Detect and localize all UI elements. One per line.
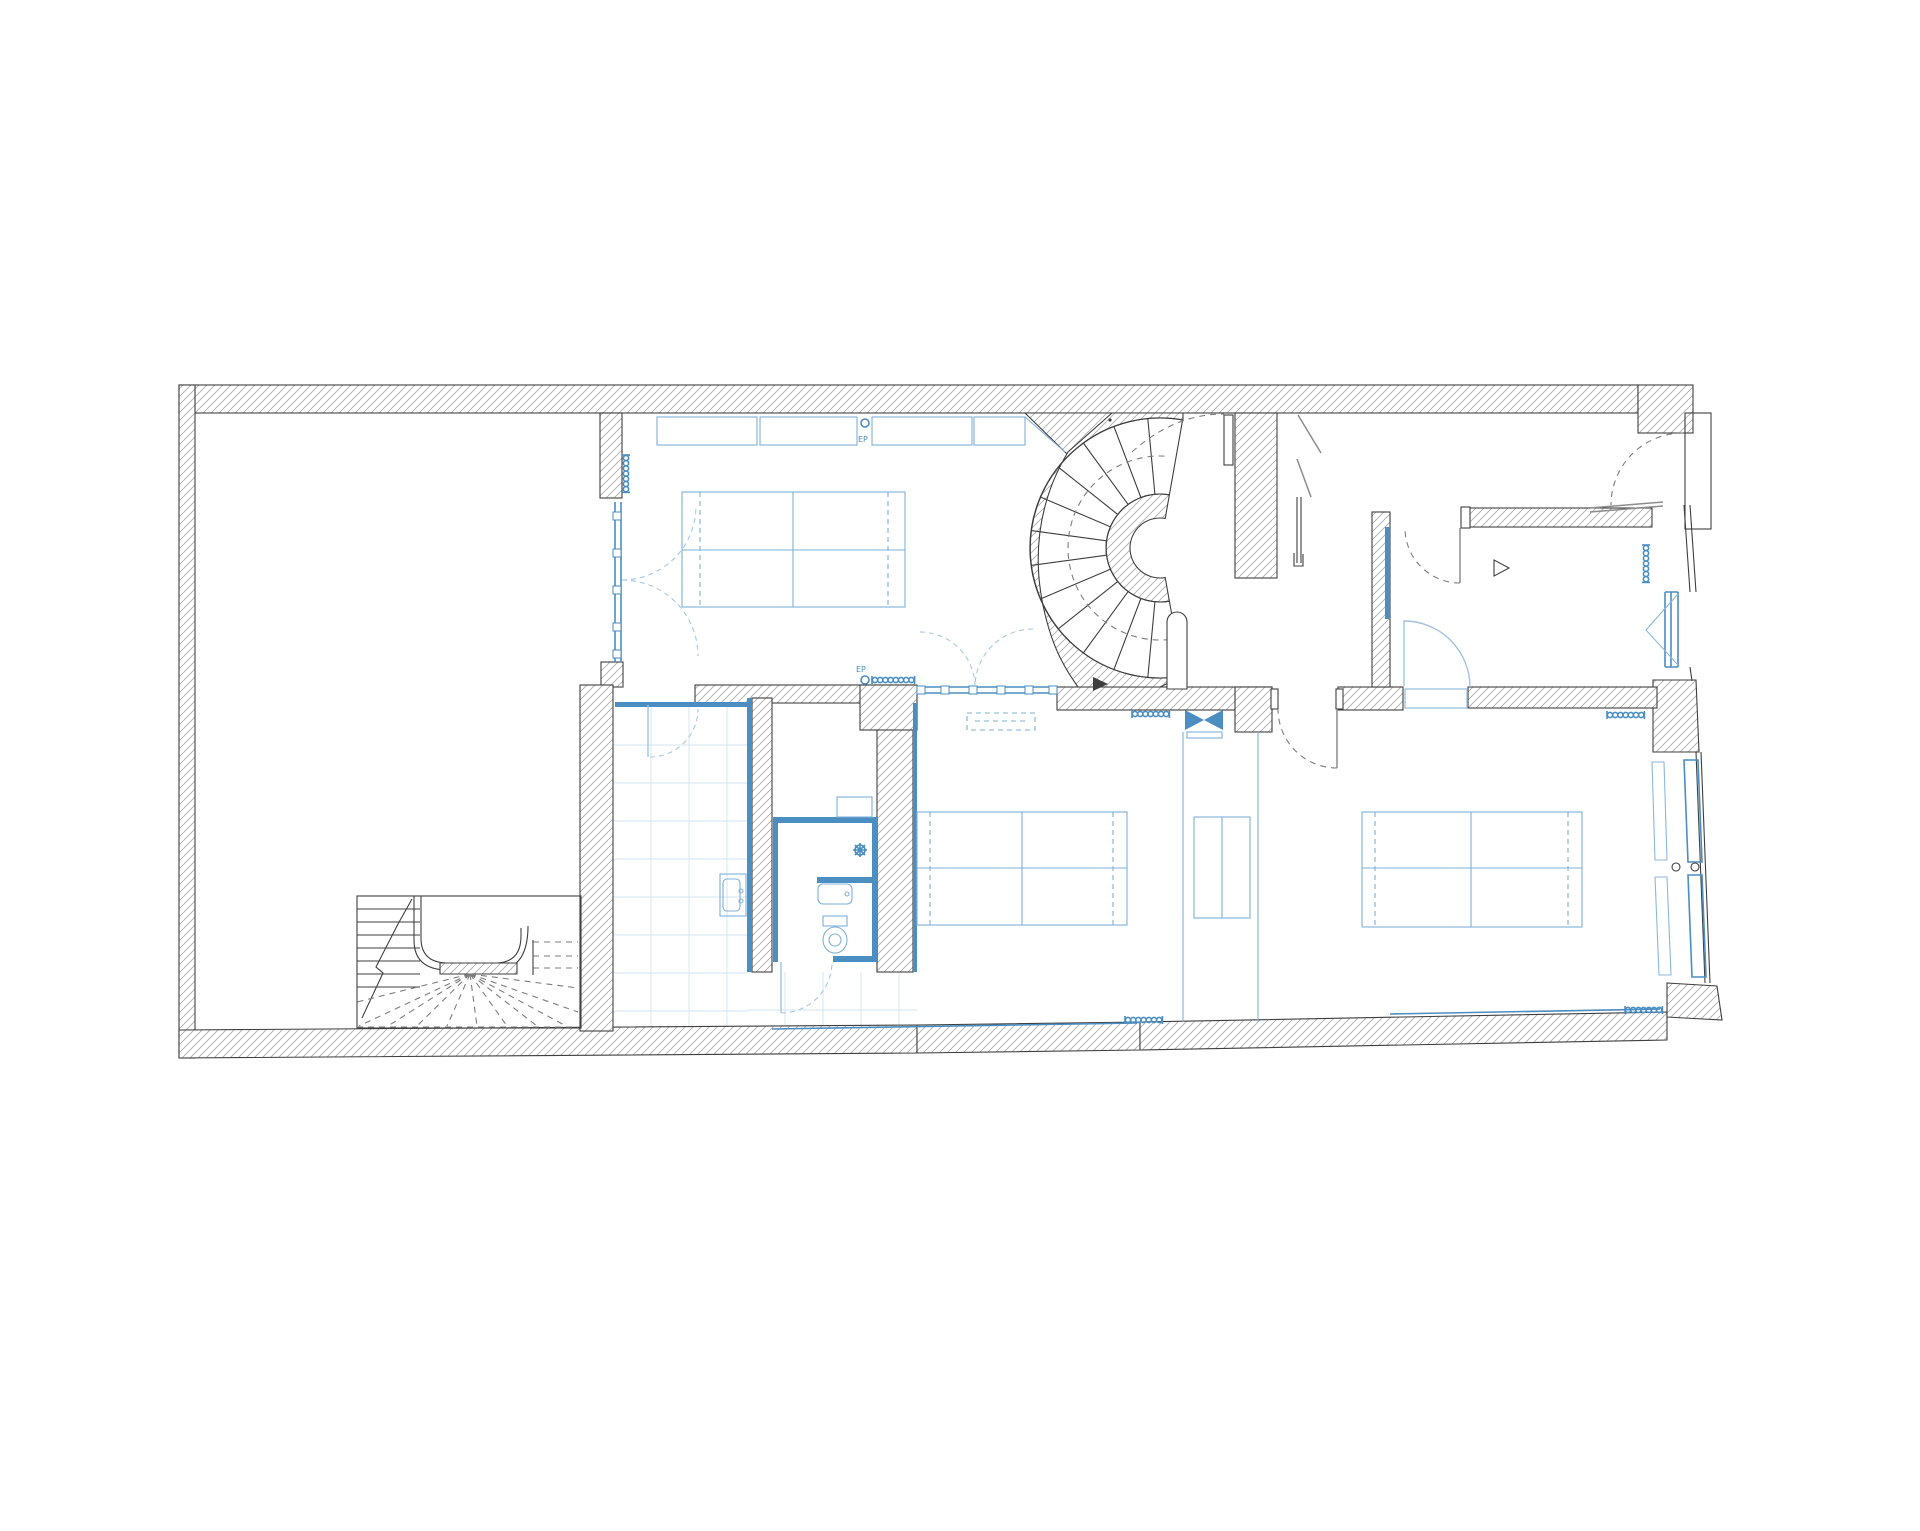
kitchen-wall-blue-edge: [615, 702, 747, 707]
entry-door-swing: [1611, 433, 1683, 505]
right-wall-mid: [1690, 667, 1692, 681]
window-bed3-2-leaf: [1655, 877, 1671, 975]
wall-dot: [1108, 418, 1111, 421]
radiator-coil-bed3-top: [1607, 711, 1644, 719]
bath-sink: [818, 884, 852, 904]
window-knob-2: [1691, 863, 1699, 871]
ep-circle-wardrobe: [861, 419, 869, 427]
radiator-coil-screen: [622, 455, 630, 492]
wardrobe-4: [974, 417, 1025, 445]
ustair-fan-treads: [357, 974, 578, 1026]
ustair-upper-flight: [533, 942, 578, 968]
kitchen-sink-basin: [723, 879, 740, 911]
bath-wall-left: [773, 817, 778, 962]
roomA-door-swing: [1405, 528, 1460, 583]
closet-niche-wall: [1294, 497, 1303, 566]
passage-floor-tiles: [747, 972, 917, 1028]
duct-shelf: [1187, 732, 1222, 738]
partition-door-swing-1: [920, 632, 975, 687]
pier-screen-bottom: [601, 662, 623, 687]
radiator-coil-roomA: [1642, 545, 1650, 582]
screen-door-swing-2: [622, 580, 698, 656]
window-roomA: [1665, 592, 1678, 667]
wardrobe-1: [657, 417, 757, 445]
window-bed3-1-leaf: [1652, 762, 1667, 860]
window-roomA-casement: [1646, 594, 1678, 665]
bed3-roomA-door-frame: [1405, 689, 1467, 708]
bottom-wall-left: [179, 1025, 917, 1058]
ustair-box: [357, 896, 581, 1028]
right-wall-upper: [1684, 505, 1696, 592]
bottom-wall-right: [1140, 1012, 1667, 1050]
radiator-coil-corridor: [872, 676, 915, 684]
wall-hall-bed3: [1338, 687, 1403, 710]
wall-bed2-left: [877, 703, 913, 972]
lining-roomA-left: [1385, 527, 1390, 619]
kitchen-door-swing: [650, 709, 698, 757]
lining-kitchen-right: [747, 698, 752, 972]
lining-bed2-left: [913, 703, 917, 972]
doorframe-hall-left: [1271, 689, 1278, 709]
top-wall: [179, 385, 1638, 413]
ep-label-corridor: EP: [856, 665, 866, 674]
ustair-direction-line: [362, 899, 412, 1018]
plan-elements: EPEP: [179, 385, 1722, 1058]
wardrobe-3: [872, 417, 972, 445]
ustair-landing-hatch: [440, 963, 517, 974]
toilet-bowl: [823, 927, 847, 953]
window-knob-1: [1672, 863, 1680, 871]
bath-wall-bottom: [833, 956, 878, 962]
level-marker: [1494, 560, 1509, 576]
pier-vestibule: [1235, 413, 1277, 578]
stair-newel-ring: [1106, 494, 1169, 602]
radiator-coil-bed2-top: [1132, 710, 1169, 718]
doorframe-vestibule: [1461, 507, 1470, 528]
kitchen-floor-tiles: [613, 707, 747, 1028]
floor-plan-drawing: EPEP: [0, 0, 1920, 1531]
wall-kitchen-left: [580, 685, 613, 1031]
bath-wall-right: [872, 823, 878, 962]
stair-newel-stub: [1167, 612, 1187, 689]
pier-corridor: [860, 685, 917, 730]
bath-wall-top: [773, 817, 878, 823]
doorframe-hall-right: [1336, 689, 1343, 709]
toilet-bowl-inner: [829, 934, 841, 946]
screen-door-swing-1: [622, 506, 696, 580]
bath-wall-divider: [817, 877, 873, 883]
glazed-partition: [917, 687, 1057, 693]
corner-block-se: [1667, 983, 1722, 1020]
bed3-outline: [1362, 812, 1582, 927]
ep-circle-corridor: [861, 676, 869, 684]
bath-door-swing: [781, 962, 832, 1013]
hall-bed3-door-swing: [1278, 709, 1337, 768]
bath-sink-tap: [845, 892, 849, 896]
duct-bowtie-right: [1204, 710, 1223, 730]
shower-drain-gear-spokes: [853, 843, 867, 857]
window-bed3-2-frame: [1688, 875, 1706, 977]
ustair-stringer-inner: [421, 896, 521, 963]
wall-roomA-bed3: [1468, 687, 1657, 708]
left-wall: [179, 385, 195, 1058]
doorframe-stair: [1224, 415, 1233, 465]
duct-bowtie-left: [1185, 710, 1204, 730]
wardrobe-2: [760, 417, 857, 445]
water-heater: [837, 797, 872, 817]
toilet-tank: [823, 916, 847, 926]
wall-chamfer: [1025, 413, 1112, 455]
block-stair-base: [1235, 687, 1272, 732]
glazed-screen: [615, 502, 621, 662]
wall-vestibule-partition: [1468, 508, 1652, 527]
right-wall-lower: [1696, 752, 1710, 983]
pier-screen-top: [600, 413, 622, 498]
bed3-roomA-door-swing: [1404, 621, 1470, 687]
wall-kitchen-right: [752, 698, 772, 972]
block-right-mid: [1653, 680, 1699, 752]
closet-door-leaf-1: [1298, 415, 1321, 453]
ep-label-wardrobe: EP: [858, 435, 868, 444]
closet-door-leaf-2: [1297, 459, 1311, 497]
floor-plan-page: EPEP: [0, 0, 1920, 1531]
partition-door-swing-2: [975, 629, 1033, 687]
ustair-treads: [357, 909, 420, 987]
